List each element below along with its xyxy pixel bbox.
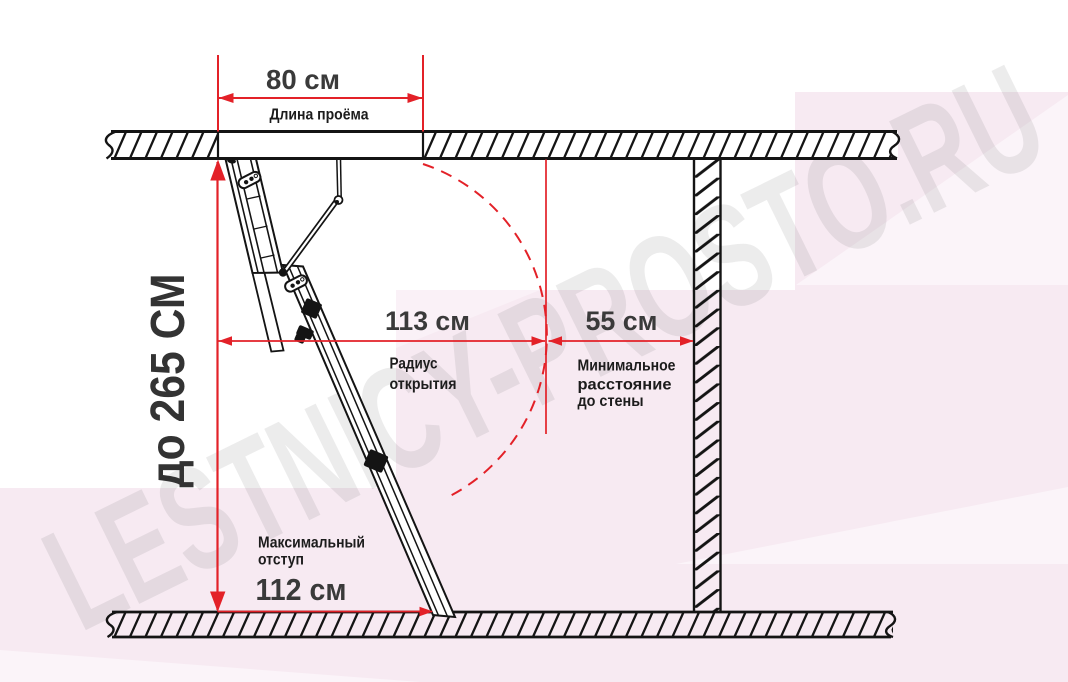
svg-text:Максимальный: Максимальный bbox=[258, 535, 365, 552]
svg-text:до 265 СМ: до 265 СМ bbox=[142, 274, 195, 488]
svg-text:112 см: 112 см bbox=[256, 572, 347, 607]
svg-text:Минимальное: Минимальное bbox=[578, 358, 676, 375]
svg-text:55 см: 55 см bbox=[586, 306, 658, 336]
svg-text:до стены: до стены bbox=[578, 393, 644, 410]
svg-text:отступ: отступ bbox=[258, 552, 304, 569]
svg-text:Радиус: Радиус bbox=[390, 356, 438, 373]
svg-text:113 см: 113 см bbox=[385, 306, 470, 336]
svg-text:Длина проёма: Длина проёма bbox=[270, 107, 369, 124]
svg-text:открытия: открытия bbox=[390, 376, 457, 393]
svg-text:расстояние: расстояние bbox=[578, 377, 672, 394]
svg-text:80 см: 80 см bbox=[266, 64, 340, 95]
